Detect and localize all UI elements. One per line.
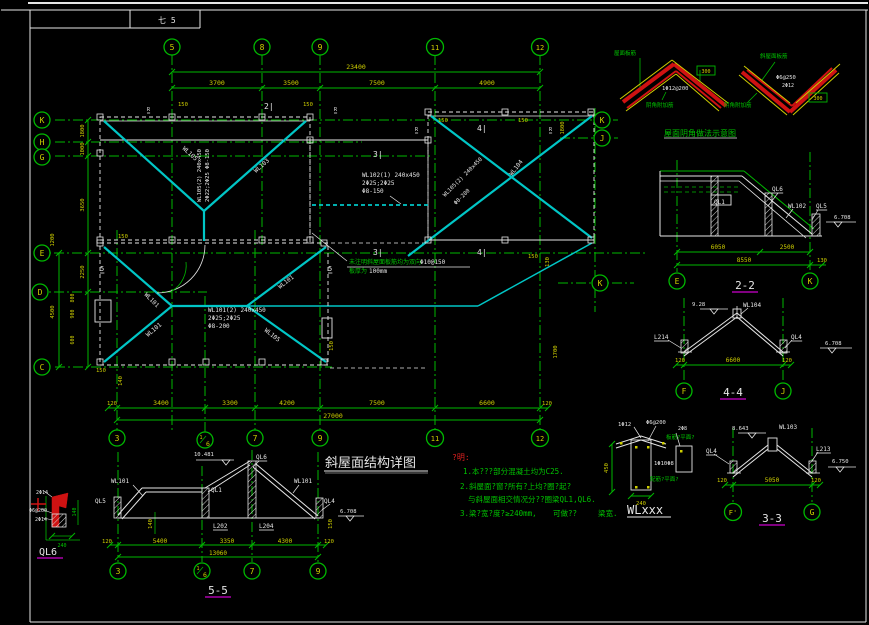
hatched-column [316, 498, 323, 518]
annotation-text: 5400 [153, 538, 168, 545]
annotation-text: 1Φ12 [618, 422, 631, 428]
cad-line [104, 121, 204, 211]
axis-bubble-label: H [40, 138, 45, 147]
annotation-text: 2Φ14 [36, 490, 48, 496]
annotation-text: 130 [545, 257, 551, 267]
annotation-text: 13060 [209, 550, 227, 557]
axis-bubble-label: K [808, 277, 813, 286]
annotation-text: QL1 [714, 199, 725, 206]
rebar-dot [635, 486, 638, 489]
cad-line [762, 62, 775, 80]
annotation-text: 800 [70, 293, 76, 302]
annotation-text: 10.481 [194, 452, 214, 458]
annotation-text: 3650 [80, 198, 86, 211]
hatched-columns [52, 176, 820, 527]
hatched-column [52, 514, 66, 527]
axis-bubble-label: 7 [250, 567, 255, 576]
annotation-text: WL104 [743, 302, 761, 309]
annotation-text: 斜屋面结构详图 [325, 456, 416, 471]
axis-bubble-label: K [598, 279, 603, 288]
annotation-text: 23400 [346, 63, 366, 71]
annotation-text: 1200 [50, 233, 56, 246]
level-symbol [748, 433, 756, 438]
annotation-text: 1Φ12@200 [662, 86, 689, 92]
annotation-text: 120 [811, 478, 821, 484]
annotation-text: Φ6@250 [776, 75, 796, 81]
axis-bubble-label: 6 [206, 440, 210, 448]
axis-bubble-label: J [781, 387, 786, 396]
annotation-text: 3-3 [762, 512, 782, 525]
annotation-text: 阴角附加筋 [724, 101, 752, 109]
cad-line [790, 70, 836, 112]
annotation-text: Φ8-200 [453, 188, 471, 206]
annotation-text: 1700 [553, 345, 559, 358]
hatched-column [780, 340, 787, 353]
annotation-text: 1Φ10Φ8 [654, 461, 674, 467]
axis-bubble-label: 12 [536, 44, 544, 52]
cad-line [737, 313, 783, 352]
annotation-text: 1.本???部分混凝土均为C25. [463, 466, 564, 476]
cad-line [733, 445, 768, 473]
cad-line [104, 306, 172, 362]
hatched-column [202, 488, 209, 518]
annotation-text: QL1 [211, 487, 222, 494]
annotation-text: QL6 [256, 454, 267, 461]
outline-rect [100, 243, 328, 365]
hatched-column [809, 461, 816, 473]
annotation-text: 150 [518, 118, 528, 124]
cad-line [662, 92, 666, 100]
annotation-text: 6.708 [825, 341, 842, 347]
annotation-text: 120 [782, 358, 792, 364]
annotation-text: 120 [102, 539, 112, 545]
annotation-text: 2Φ12 [782, 83, 794, 89]
axis-bubble-label: 8 [260, 43, 265, 52]
annotation-text: 板筋?平面? [666, 433, 695, 441]
annotation-text: 1800 [560, 121, 566, 134]
annotation-text: 屋面阴角做法示意图 [664, 128, 736, 138]
axis-bubble-label: 7 [253, 434, 258, 443]
annotation-text: 120 [107, 401, 117, 407]
annotation-text: 140 [72, 507, 78, 516]
annotation-text: 4| [477, 248, 487, 257]
annotation-text: 8.643 [732, 426, 749, 432]
annotation-text: 130 [817, 258, 827, 264]
annotation-text: 120 [717, 478, 727, 484]
annotation-text: L214 [654, 334, 669, 341]
axis-bubble-label: K [40, 116, 45, 125]
annotation-text: 2.斜屋面?窗?所有?上均?圈?起? [460, 481, 571, 491]
axis-bubble-label: 6 [203, 571, 207, 579]
annotation-text: 板厚为 [349, 267, 367, 275]
annotation-text: 6050 [711, 244, 726, 251]
axis-bubble-label: G [810, 508, 815, 517]
cad-line [684, 317, 737, 356]
axis-bubble-label: 9 [316, 567, 321, 576]
annotation-text: 屋面板筋 [614, 49, 637, 57]
annotation-text: 140 [118, 376, 124, 386]
cad-line [777, 445, 812, 473]
annotation-text: 6.708 [834, 215, 851, 221]
hatched-column [248, 461, 256, 518]
annotation-text: 1000 [80, 142, 86, 155]
outline-rect [768, 438, 777, 451]
annotation-text: 4300 [278, 538, 293, 545]
cad-line [408, 116, 592, 256]
annotation-text: 6.750 [832, 459, 849, 465]
cad-line [118, 488, 142, 515]
annotation-text: 2500 [780, 244, 795, 251]
cad-line [737, 317, 783, 356]
axis-bubble-label: 9 [318, 434, 323, 443]
cad-line [133, 485, 143, 496]
annotation-text: WLxxx [627, 503, 663, 517]
annotation-text: 2Φ22;2Φ25 Φ8-150 [205, 149, 211, 202]
annotation-text: R [334, 107, 338, 113]
detail-path [157, 245, 205, 293]
annotation-text: L213 [816, 446, 831, 453]
annotation-text: 4500 [50, 305, 56, 318]
annotation-text: 2| [264, 102, 274, 111]
annotation-text: QL4 [706, 448, 717, 455]
annotation-text: Φ8-200 [208, 323, 230, 330]
hatched-column [681, 340, 688, 353]
outline-rect [322, 318, 332, 338]
annotation-text: 6.708 [340, 509, 357, 515]
annotation-text: 120 [675, 358, 685, 364]
cad-line [253, 467, 315, 519]
hatched-column [812, 214, 820, 236]
annotation-text: 300 [701, 69, 710, 75]
annotation-text: WL102 [788, 203, 806, 210]
annotation-text: R [147, 107, 151, 113]
cad-line [744, 171, 814, 229]
annotation-text: 2-2 [735, 279, 755, 292]
rebar-dot [662, 442, 665, 445]
annotation-text: WL101 [111, 478, 129, 485]
annotation-text: QL6 [39, 547, 57, 558]
annotation-text: 3| [373, 248, 383, 257]
cad-line [247, 306, 326, 362]
axis-bubble-label: E [675, 277, 680, 286]
annotation-text: 斜屋面板筋 [760, 52, 788, 60]
level-symbol [828, 348, 836, 353]
annotation-text: WL103 [779, 424, 797, 431]
cad-line [793, 73, 839, 115]
annotation-text: 120 [324, 539, 334, 545]
annotation-text: 240 [57, 543, 66, 549]
rebar-dot [647, 486, 650, 489]
outline-rect [95, 300, 111, 322]
annotation-text: WL101 [145, 321, 164, 338]
annotation-text: 6600 [479, 399, 495, 407]
cad-line [205, 461, 250, 488]
annotation-text: 27000 [323, 412, 343, 420]
annotation-text: Φ6@200 [646, 420, 666, 426]
annotation-text: 150 [178, 102, 188, 108]
axis-bubble-label: 3 [115, 434, 120, 443]
annotation-text: 3300 [222, 399, 238, 407]
annotation-text: QL5 [95, 498, 106, 505]
annotation-text: 5050 [765, 477, 780, 484]
annotation-text: 未注明斜屋面板筋均为双向 [349, 258, 421, 266]
hatched-column [765, 193, 772, 236]
annotation-text: 3| [373, 150, 383, 159]
hatched-column [711, 176, 718, 236]
annotation-text: 1800 [80, 124, 86, 137]
cad-line [293, 485, 299, 493]
annotation-text: R [549, 127, 553, 133]
annotation-text: 4200 [279, 399, 295, 407]
axis-bubble-label: K [600, 116, 605, 125]
axis-bubble-label: F' [729, 509, 737, 517]
annotation-text: 150 [329, 341, 335, 351]
level-symbol [346, 516, 354, 521]
outline-rect [676, 446, 692, 472]
annotation-text: 140 [148, 519, 154, 529]
annotation-text: 450 [604, 463, 610, 473]
annotation-text: 8550 [737, 257, 752, 264]
annotation-text: ?明: [452, 453, 470, 462]
axis-bubble-label: E [40, 249, 45, 258]
level-symbol [836, 467, 844, 472]
annotation-text: 3700 [209, 79, 225, 87]
annotation-text: 阴角附加筋 [646, 101, 674, 109]
annotation-text: 100mm [369, 268, 387, 275]
level-symbol [834, 222, 842, 227]
axis-bubble-label: 11 [431, 435, 439, 443]
axis-bubble-label: G [40, 153, 45, 162]
level-symbol [222, 460, 230, 465]
annotation-text: 3500 [283, 79, 299, 87]
axis-bubble-label: 3 [116, 567, 121, 576]
annotation-text: 150 [118, 234, 128, 240]
level-symbol [710, 309, 718, 314]
annotation-text: 与斜屋面相交情况分??圈梁QL1,QL6. [468, 494, 596, 504]
annotation-text: WL101(2) 240x450 [208, 307, 266, 314]
detail-path [172, 262, 186, 291]
cad-line [792, 68, 832, 106]
cad-line [623, 64, 674, 102]
column-marker [203, 359, 209, 365]
annotation-text: Φ8-150 [362, 188, 384, 195]
annotation-text: QL4 [324, 498, 335, 505]
cad-line [312, 233, 347, 261]
cad-line [104, 247, 172, 306]
annotation-text: 300 [813, 96, 822, 102]
cad-line [684, 313, 737, 352]
annotation-text: 900 [70, 309, 76, 318]
annotation-text: 3400 [153, 399, 169, 407]
annotation-text: 3350 [220, 538, 235, 545]
annotation-text: Φ6@200 [29, 508, 47, 514]
annotation-text: 梁宽. [598, 508, 618, 518]
annotation-text: 9.28 [692, 302, 705, 308]
annotation-text: 7500 [369, 399, 385, 407]
hatched-column [114, 497, 121, 518]
annotation-text: 4-4 [723, 386, 743, 399]
axis-bubble-label: 5 [170, 43, 175, 52]
axis-bubble-label: C [40, 363, 45, 372]
annotation-text: 4| [477, 124, 487, 133]
annotation-text: 120 [542, 401, 552, 407]
axis-bubble-label: 11 [431, 44, 439, 52]
annotation-text: QL5 [816, 203, 827, 210]
annotation-text: 4900 [479, 79, 495, 87]
annotation-text: WL101 [294, 478, 312, 485]
annotation-text: 5 [328, 265, 332, 273]
axis-bubble-label: J [600, 134, 605, 143]
annotation-text: 5 [100, 265, 104, 273]
axis-bubble-label: 9 [318, 43, 323, 52]
cad-line [390, 196, 401, 204]
annotation-text: 150 [96, 368, 106, 374]
annotation-text: WL102(1) 240x450 [362, 172, 420, 179]
cad-line [714, 454, 729, 464]
annotation-text: L204 [259, 523, 274, 530]
annotation-text: 150 [438, 118, 448, 124]
annotation-text: 七 5 [158, 16, 176, 25]
annotation-text: 150 [528, 254, 538, 260]
rebar-dot [647, 446, 650, 449]
cad-line [122, 492, 146, 519]
rebar-dot [680, 450, 683, 453]
cad-line [478, 243, 592, 306]
axis-bubble-label: F [682, 387, 687, 396]
annotation-text: 3.梁?宽?度?≥240mm, [460, 508, 537, 518]
annotation-text: 2Φ25;2Φ25 [208, 315, 241, 322]
annotation-text: 150 [328, 519, 334, 529]
annotation-text: 2Φ14 [35, 517, 47, 523]
annotation-text: 7500 [369, 79, 385, 87]
annotation-text: QL4 [791, 334, 802, 341]
hatched-column [730, 461, 737, 473]
annotation-text: 6600 [726, 357, 741, 364]
annotation-text: 2250 [80, 265, 86, 278]
annotation-text: 2Φ25;2Φ25 [362, 180, 395, 187]
annotation-text: 150 [303, 102, 313, 108]
cad-drawing-sheet: 5891112316791112KHGEDCKJKEKFJF'G31679 七 … [0, 0, 869, 625]
cad-line [748, 93, 757, 102]
cad-canvas: 5891112316791112KHGEDCKJKEKFJF'G31679 七 … [0, 0, 869, 625]
rebar-dot [620, 442, 623, 445]
annotation-text: 2Φ8 [678, 426, 687, 432]
axis-bubble-label: D [38, 288, 43, 297]
dimension-ticks [49, 69, 825, 560]
column-marker [259, 359, 265, 365]
annotation-text: Φ10@150 [420, 259, 446, 266]
annotation-text: 配筋?平面? [650, 475, 679, 483]
rebar-dot [635, 446, 638, 449]
annotation-text: QL6 [772, 186, 783, 193]
annotation-text: 600 [70, 335, 76, 344]
axis-bubble-label: 12 [536, 435, 544, 443]
cad-line [256, 464, 318, 516]
cad-line [668, 340, 681, 348]
annotation-text: 5-5 [208, 584, 228, 597]
annotation-text: R [415, 127, 419, 133]
annotation-text: L202 [213, 523, 228, 530]
annotation-text: 可做?? [553, 508, 577, 518]
